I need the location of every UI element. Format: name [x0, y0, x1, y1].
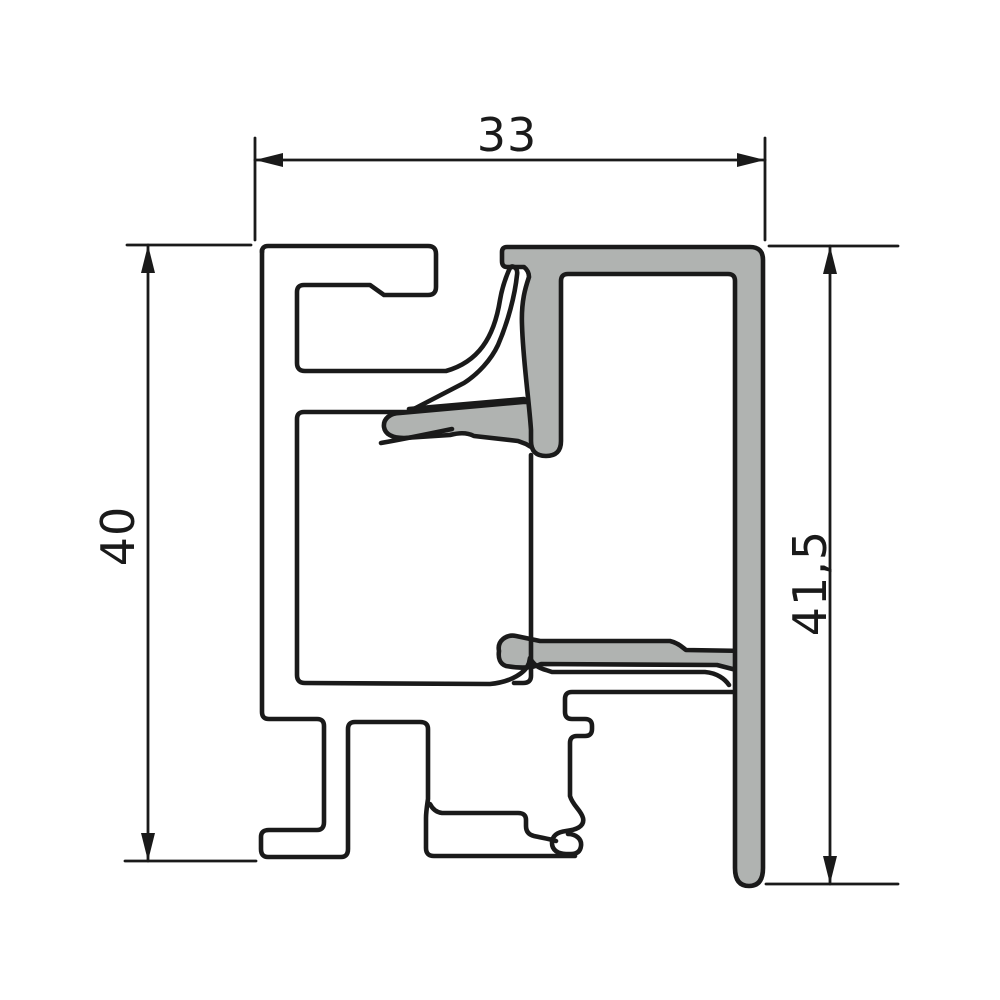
bead-body — [502, 247, 763, 886]
dim-arrow-right-up — [823, 246, 837, 274]
profile-drawing-canvas: 33 40 41,5 — [0, 0, 1000, 1000]
dimension-label-right-height: 41,5 — [783, 530, 837, 636]
frame-middle-foot-top — [430, 804, 556, 841]
dimension-label-top-width: 33 — [477, 108, 538, 162]
dim-arrow-left — [255, 153, 283, 167]
dim-arrow-up — [141, 245, 155, 273]
dim-arrow-right — [737, 153, 765, 167]
dimension-label-left-height: 40 — [91, 506, 145, 567]
glazing-bead-profile — [384, 247, 763, 886]
frame-tslot-outline — [552, 692, 733, 854]
frame-profile — [261, 246, 733, 857]
technical-drawing-page: 33 40 41,5 — [0, 0, 1000, 1000]
dim-arrow-down — [141, 833, 155, 861]
frame-upper-outline — [262, 246, 729, 685]
dim-arrow-right-down — [823, 856, 837, 884]
